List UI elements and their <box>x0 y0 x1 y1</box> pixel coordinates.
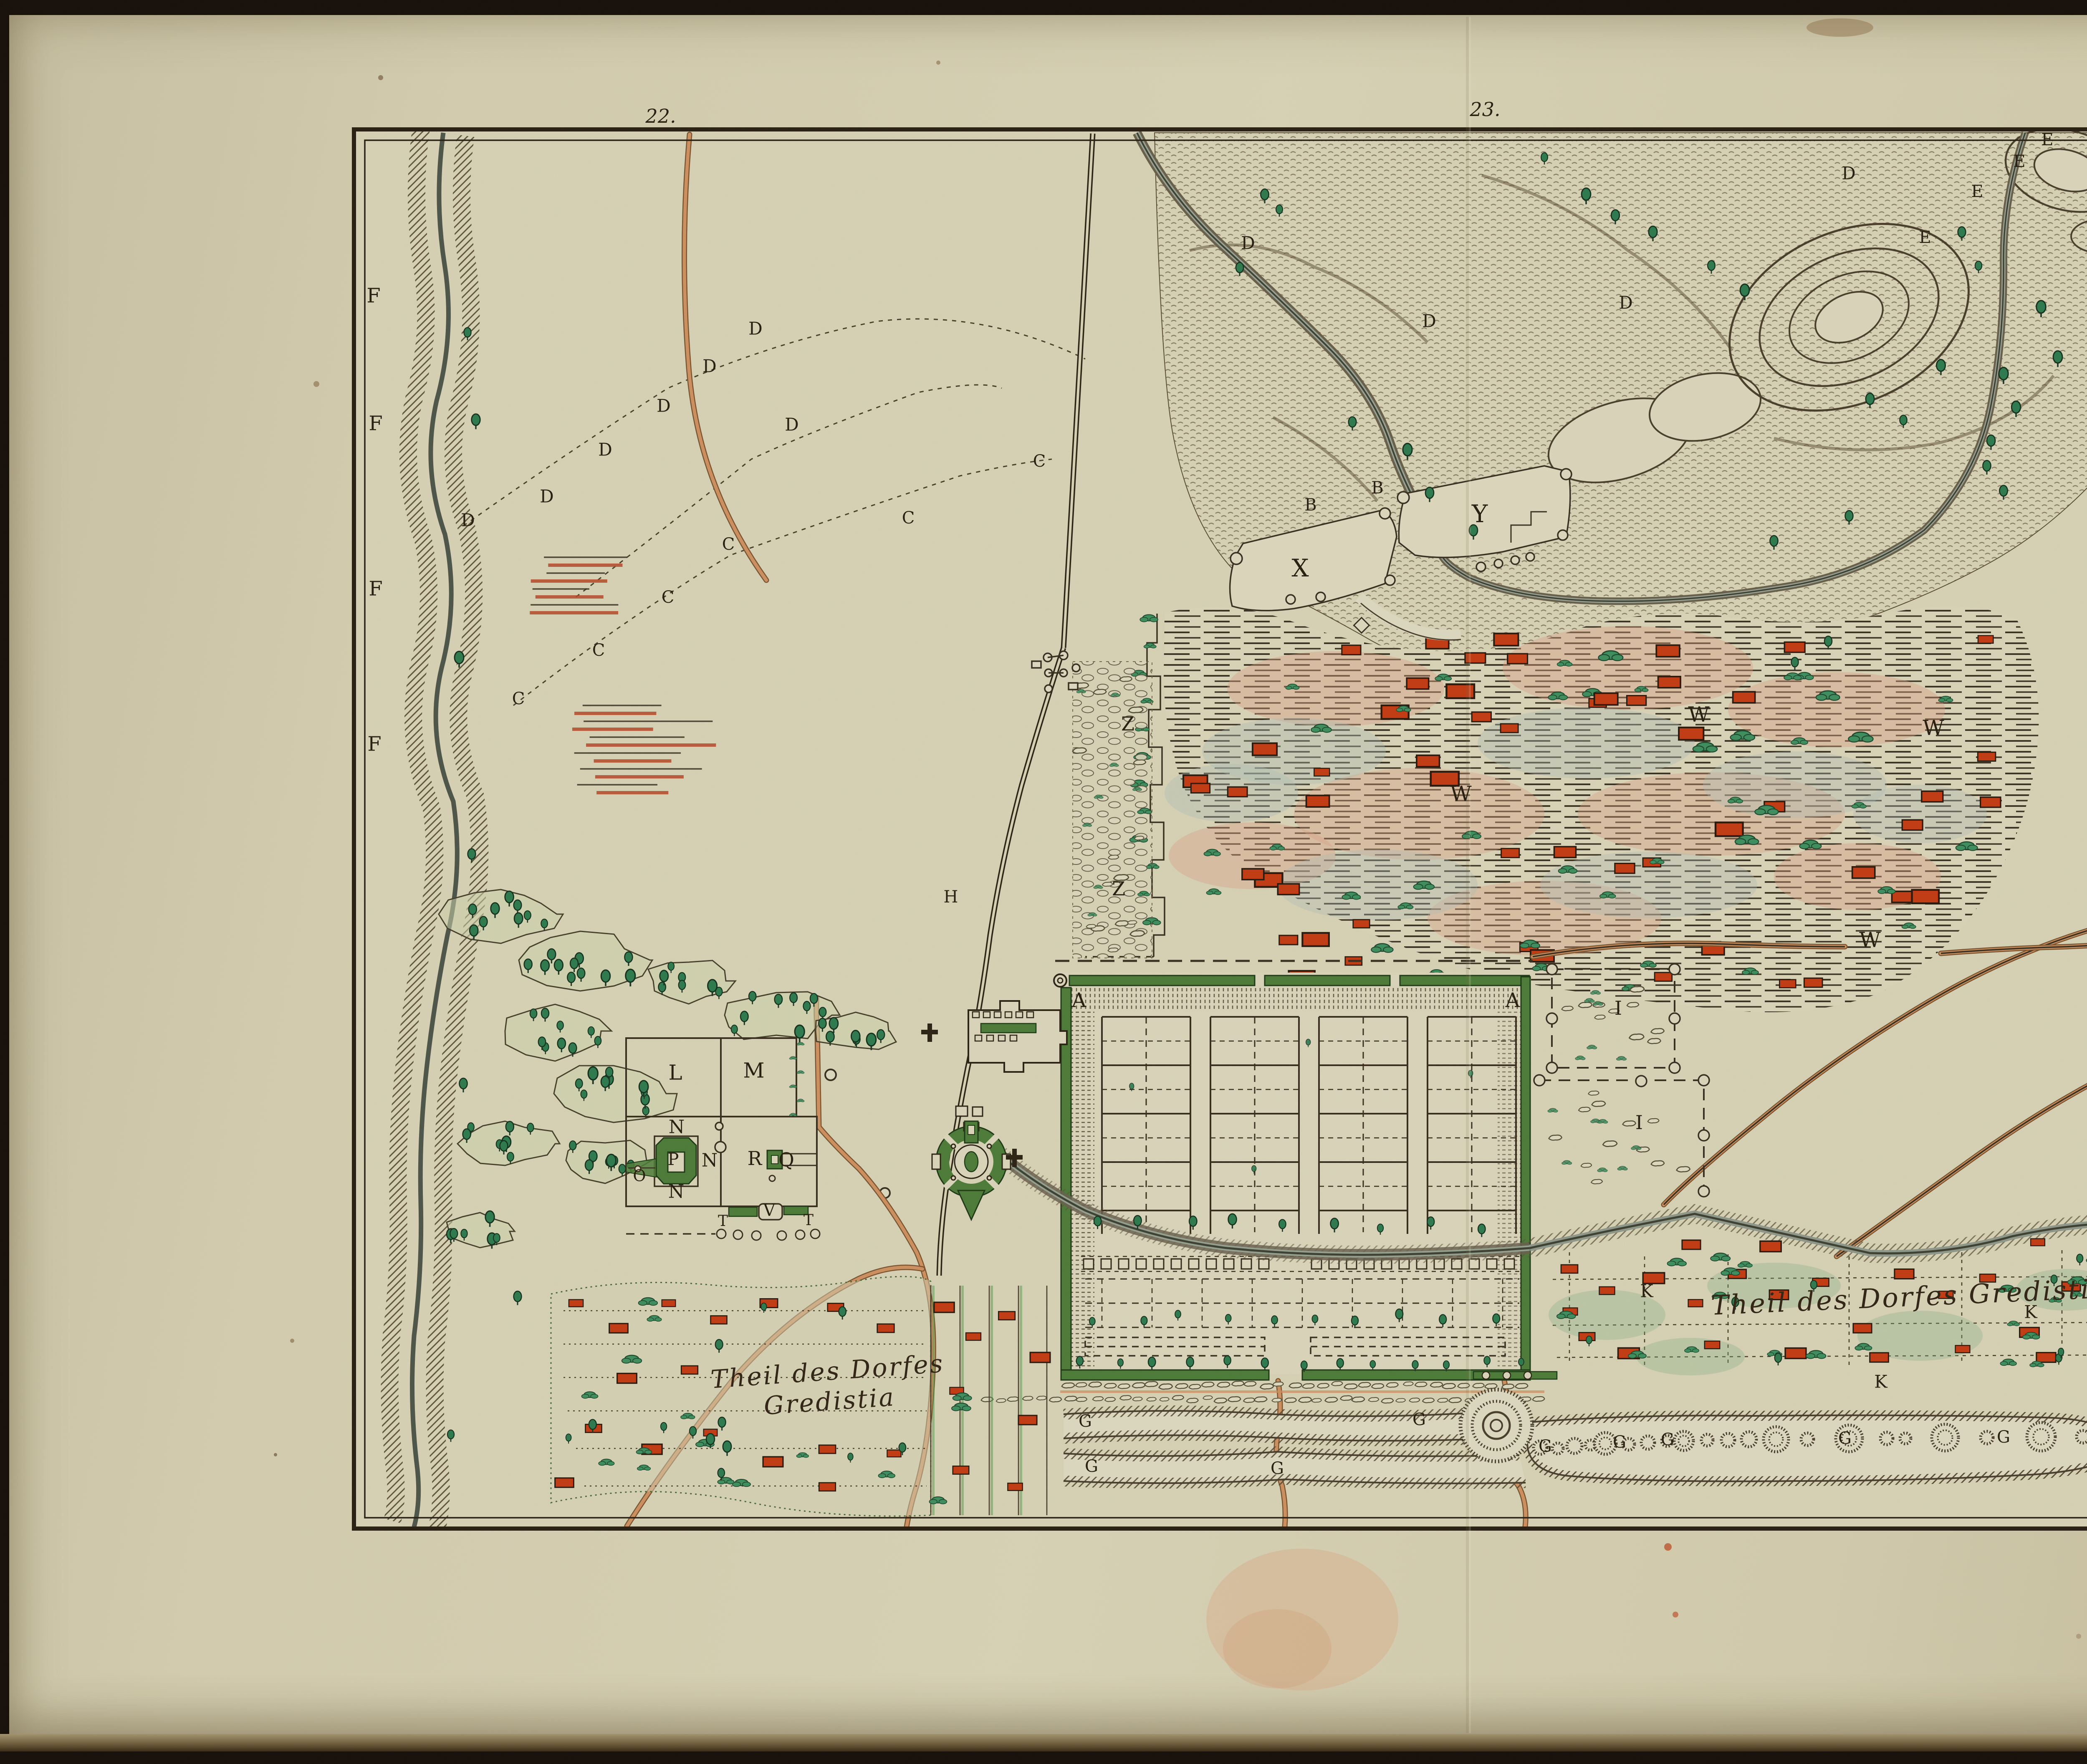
page-number-right: 23. <box>1470 98 1500 121</box>
map-engraving <box>0 0 2087 1764</box>
book-spread: 22. 23. Theil des Dorfes Gredistia Theil… <box>0 0 2087 1764</box>
paper-stains <box>0 0 2087 1764</box>
page-number-left: 22. <box>645 105 676 127</box>
